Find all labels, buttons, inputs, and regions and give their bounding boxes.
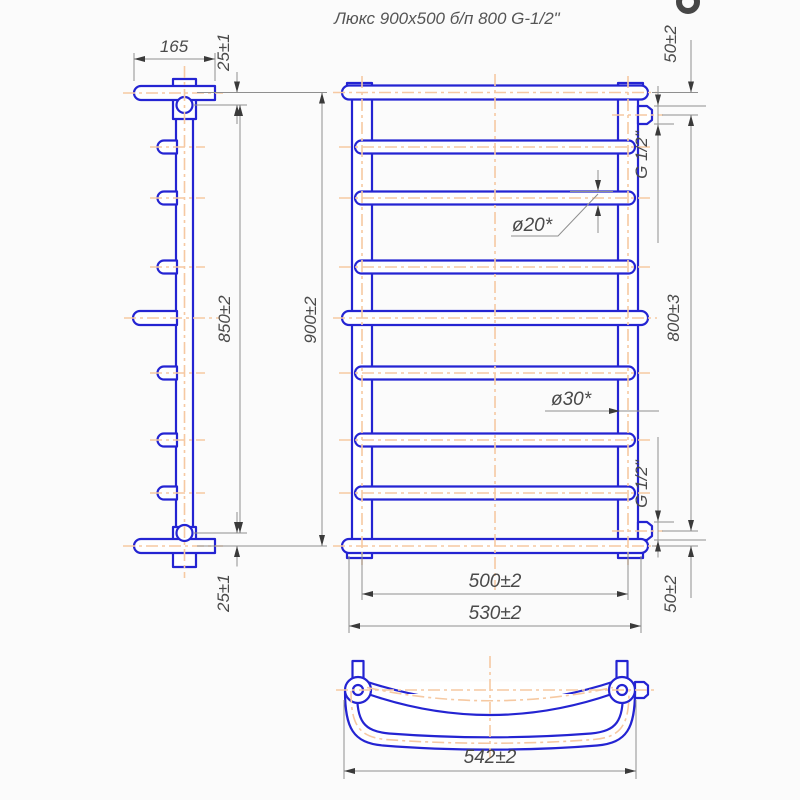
dim-offset-bottom: 25±1 (214, 574, 233, 613)
logo-mark (679, 0, 697, 11)
side-view: 165 25±1 850±2 25±1 (123, 33, 327, 613)
dim-tube-length: 850±2 (215, 295, 234, 343)
dim-bar-length: 165 (160, 37, 189, 56)
front-view-outline (342, 83, 652, 558)
thread-size-bottom: G 1/2" (632, 459, 651, 508)
dim-connection-spacing: 800±3 (664, 294, 683, 342)
dim-rung-diameter: ø20* (512, 215, 553, 236)
dim-tube-diameter: ø30* (551, 389, 592, 410)
technical-drawing: Люкс 900x500 б/п 800 G-1/2" (0, 0, 800, 800)
dim-bottom-connection-offset: 50±2 (661, 575, 680, 613)
top-view-outline (345, 661, 648, 750)
dim-overall-width: 530±2 (469, 603, 522, 624)
thread-size-top: G 1/2" (632, 130, 651, 179)
dim-rung-span: 500±2 (469, 571, 522, 592)
top-view: 542±2 (336, 656, 655, 779)
front-view: 900±2 ø20* ø30* 500±2 530±2 (301, 25, 706, 633)
dim-top-view-width: 542±2 (464, 747, 517, 768)
dim-height: 900±2 (301, 296, 320, 344)
dim-offset-top: 25±1 (214, 33, 233, 72)
dim-top-connection-offset: 50±2 (661, 25, 680, 63)
drawing-title: Люкс 900x500 б/п 800 G-1/2" (333, 9, 560, 28)
